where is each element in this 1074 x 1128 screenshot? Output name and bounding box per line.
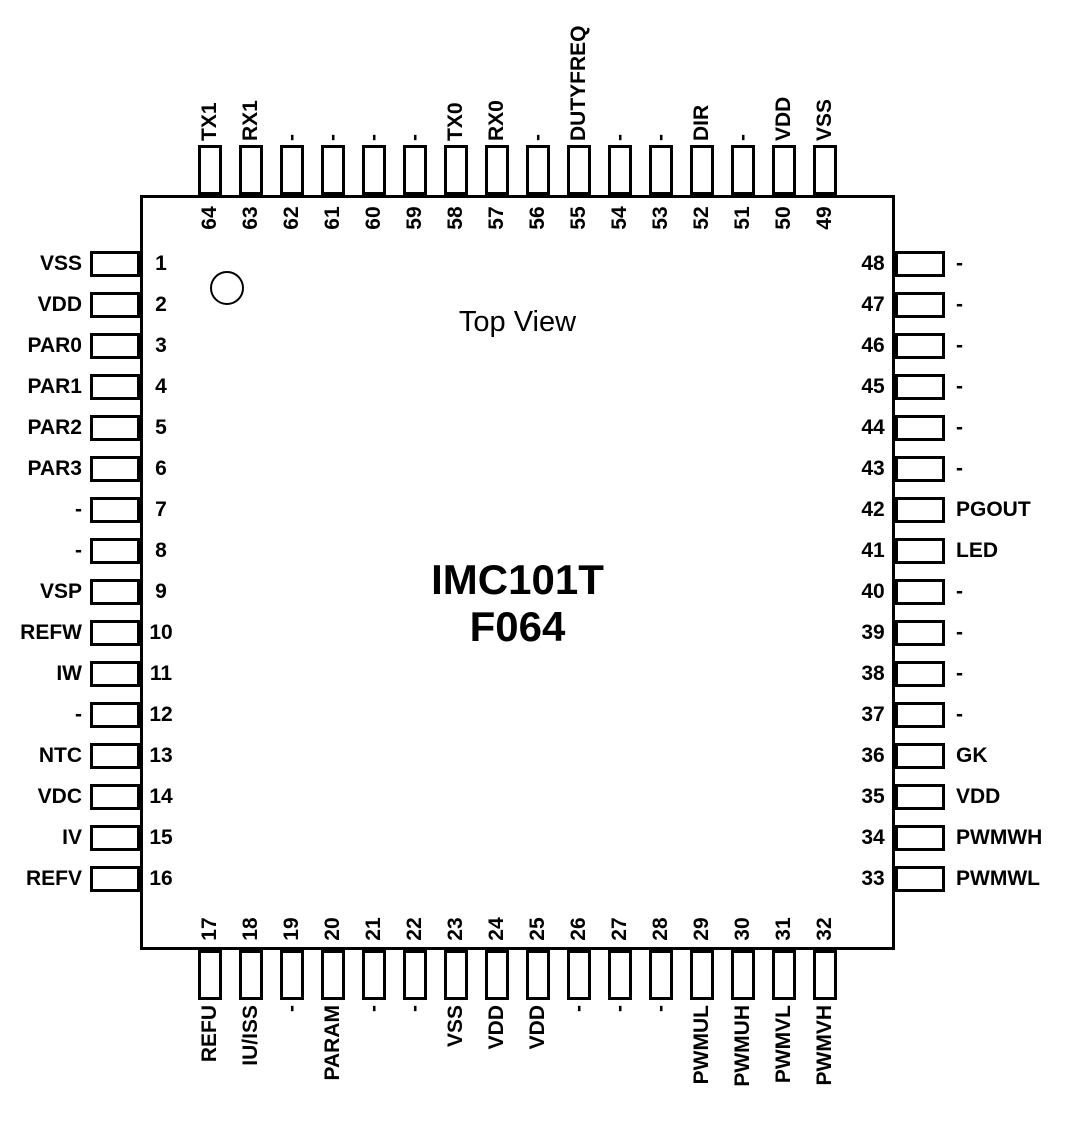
pin-34 (895, 825, 945, 851)
pin-63 (239, 145, 263, 195)
pin-39-label: - (956, 620, 1074, 646)
pin-21-label: - (361, 1005, 387, 1128)
pin-14-label: VDC (0, 784, 82, 810)
chip-package: F064 (140, 603, 895, 650)
pin-21-number: 21 (361, 909, 387, 949)
pin-9-number: 9 (141, 579, 181, 605)
pin-27-number: 27 (607, 909, 633, 949)
pin-19-number: 19 (279, 909, 305, 949)
pin-61-number: 61 (320, 198, 346, 238)
pin-52-label: DIR (689, 1, 715, 141)
pin-22-number: 22 (402, 909, 428, 949)
pin-55-label: DUTYFREQ (566, 1, 592, 141)
pin-19-label: - (279, 1005, 305, 1128)
pin-42 (895, 497, 945, 523)
pin-63-number: 63 (238, 198, 264, 238)
pin-57-number: 57 (484, 198, 510, 238)
pin-62-number: 62 (279, 198, 305, 238)
pin-12-label: - (0, 702, 82, 728)
pin-17-label: REFU (197, 1005, 223, 1128)
pin-37-label: - (956, 702, 1074, 728)
pin-28 (649, 950, 673, 1000)
pin-14-number: 14 (141, 784, 181, 810)
pin-38 (895, 661, 945, 687)
pin-42-number: 42 (853, 497, 893, 523)
pin-29-label: PWMUL (689, 1005, 715, 1128)
pin-32-number: 32 (812, 909, 838, 949)
pin-3-label: PAR0 (0, 333, 82, 359)
pin-40-number: 40 (853, 579, 893, 605)
pin-32-label: PWMVH (812, 1005, 838, 1128)
pin-9-label: VSP (0, 579, 82, 605)
pin-43-label: - (956, 456, 1074, 482)
pin-35 (895, 784, 945, 810)
pin-58-number: 58 (443, 198, 469, 238)
pin-6 (90, 456, 140, 482)
pin-34-label: PWMWH (956, 825, 1074, 851)
pin-1-label: VSS (0, 251, 82, 277)
pin-16 (90, 866, 140, 892)
pin-4-number: 4 (141, 374, 181, 400)
pin-36-label: GK (956, 743, 1074, 769)
view-label: Top View (140, 306, 895, 339)
pin-17 (198, 950, 222, 1000)
pin-48 (895, 251, 945, 277)
pin-47-label: - (956, 292, 1074, 318)
pin-60-number: 60 (361, 198, 387, 238)
pin-44-number: 44 (853, 415, 893, 441)
pin-24-number: 24 (484, 909, 510, 949)
pin-18 (239, 950, 263, 1000)
pin-62-label: - (279, 1, 305, 141)
pin-28-label: - (648, 1005, 674, 1128)
pin-26-number: 26 (566, 909, 592, 949)
pin-10-label: REFW (0, 620, 82, 646)
pin-32 (813, 950, 837, 1000)
pin-39 (895, 620, 945, 646)
pin-25-label: VDD (525, 1005, 551, 1128)
pin-61 (321, 145, 345, 195)
pin-11-number: 11 (141, 661, 181, 687)
pin-46 (895, 333, 945, 359)
pin-61-label: - (320, 1, 346, 141)
pin-63-label: RX1 (238, 1, 264, 141)
pin-52-number: 52 (689, 198, 715, 238)
pin-8 (90, 538, 140, 564)
pin-20-number: 20 (320, 909, 346, 949)
pin-38-number: 38 (853, 661, 893, 687)
pin-15-label: IV (0, 825, 82, 851)
pin-13-number: 13 (141, 743, 181, 769)
pin-16-label: REFV (0, 866, 82, 892)
pin-10 (90, 620, 140, 646)
pin-41-label: LED (956, 538, 1074, 564)
diagram-stage: Top View IMC101T F064 64TX163RX162-61-60… (0, 0, 1074, 1128)
pin-54 (608, 145, 632, 195)
pin-25-number: 25 (525, 909, 551, 949)
pin-48-label: - (956, 251, 1074, 277)
pin-64-label: TX1 (197, 1, 223, 141)
pin-44 (895, 415, 945, 441)
pin-44-label: - (956, 415, 1074, 441)
pin-36 (895, 743, 945, 769)
pin-60 (362, 145, 386, 195)
pin-54-label: - (607, 1, 633, 141)
pin-46-label: - (956, 333, 1074, 359)
pin-1-number: 1 (141, 251, 181, 277)
pin-51-number: 51 (730, 198, 756, 238)
pin-13 (90, 743, 140, 769)
pin-43 (895, 456, 945, 482)
pin-56-number: 56 (525, 198, 551, 238)
pin-33-label: PWMWL (956, 866, 1074, 892)
pin-37-number: 37 (853, 702, 893, 728)
pin-41 (895, 538, 945, 564)
pin-46-number: 46 (853, 333, 893, 359)
pin-7-label: - (0, 497, 82, 523)
pin-24-label: VDD (484, 1005, 510, 1128)
pin-24 (485, 950, 509, 1000)
pin-57-label: RX0 (484, 1, 510, 141)
pin-19 (280, 950, 304, 1000)
pin-35-number: 35 (853, 784, 893, 810)
pin-50-number: 50 (771, 198, 797, 238)
pin-56 (526, 145, 550, 195)
pin-53-number: 53 (648, 198, 674, 238)
pin-64 (198, 145, 222, 195)
pin-3 (90, 333, 140, 359)
pin-5-label: PAR2 (0, 415, 82, 441)
pin-53 (649, 145, 673, 195)
pin-33 (895, 866, 945, 892)
pin-3-number: 3 (141, 333, 181, 359)
pin-17-number: 17 (197, 909, 223, 949)
pin-14 (90, 784, 140, 810)
pin-22-label: - (402, 1005, 428, 1128)
pin-8-number: 8 (141, 538, 181, 564)
pin-6-number: 6 (141, 456, 181, 482)
pin-59-label: - (402, 1, 428, 141)
pin-5-number: 5 (141, 415, 181, 441)
pin-18-number: 18 (238, 909, 264, 949)
pin-1 (90, 251, 140, 277)
pin-30-number: 30 (730, 909, 756, 949)
pin-36-number: 36 (853, 743, 893, 769)
pin-55 (567, 145, 591, 195)
pin-50-label: VDD (771, 1, 797, 141)
pin-7-number: 7 (141, 497, 181, 523)
pin-12 (90, 702, 140, 728)
pin-15-number: 15 (141, 825, 181, 851)
pin-39-number: 39 (853, 620, 893, 646)
pin-45 (895, 374, 945, 400)
pin-47-number: 47 (853, 292, 893, 318)
pin-6-label: PAR3 (0, 456, 82, 482)
pin-59 (403, 145, 427, 195)
pin-49-label: VSS (812, 1, 838, 141)
pin-23 (444, 950, 468, 1000)
pin-38-label: - (956, 661, 1074, 687)
pin-30 (731, 950, 755, 1000)
pin-59-number: 59 (402, 198, 428, 238)
pin-55-number: 55 (566, 198, 592, 238)
pin-62 (280, 145, 304, 195)
pin-23-number: 23 (443, 909, 469, 949)
pin-31-label: PWMVL (771, 1005, 797, 1128)
pin-28-number: 28 (648, 909, 674, 949)
pin-1-marker-icon (210, 271, 244, 305)
pin-12-number: 12 (141, 702, 181, 728)
pin-37 (895, 702, 945, 728)
pin-2 (90, 292, 140, 318)
pin-43-number: 43 (853, 456, 893, 482)
pin-56-label: - (525, 1, 551, 141)
pin-31 (772, 950, 796, 1000)
pin-52 (690, 145, 714, 195)
pin-53-label: - (648, 1, 674, 141)
pin-18-label: IU/ISS (238, 1005, 264, 1128)
pin-47 (895, 292, 945, 318)
pin-22 (403, 950, 427, 1000)
pin-57 (485, 145, 509, 195)
pin-27-label: - (607, 1005, 633, 1128)
pin-54-number: 54 (607, 198, 633, 238)
pin-30-label: PWMUH (730, 1005, 756, 1128)
pin-48-number: 48 (853, 251, 893, 277)
pin-8-label: - (0, 538, 82, 564)
pin-40-label: - (956, 579, 1074, 605)
pin-21 (362, 950, 386, 1000)
pin-20 (321, 950, 345, 1000)
pin-23-label: VSS (443, 1005, 469, 1128)
chip-title: IMC101T (140, 556, 895, 603)
pin-20-label: PARAM (320, 1005, 346, 1128)
pin-13-label: NTC (0, 743, 82, 769)
pin-45-label: - (956, 374, 1074, 400)
pin-41-number: 41 (853, 538, 893, 564)
pin-42-label: PGOUT (956, 497, 1074, 523)
pin-15 (90, 825, 140, 851)
pin-4 (90, 374, 140, 400)
pin-26 (567, 950, 591, 1000)
pin-11 (90, 661, 140, 687)
pin-5 (90, 415, 140, 441)
pin-25 (526, 950, 550, 1000)
pin-45-number: 45 (853, 374, 893, 400)
pin-40 (895, 579, 945, 605)
pin-16-number: 16 (141, 866, 181, 892)
pin-34-number: 34 (853, 825, 893, 851)
pin-49 (813, 145, 837, 195)
pin-58-label: TX0 (443, 1, 469, 141)
chip-name: IMC101T F064 (140, 556, 895, 650)
pin-50 (772, 145, 796, 195)
pin-29 (690, 950, 714, 1000)
pin-4-label: PAR1 (0, 374, 82, 400)
pin-9 (90, 579, 140, 605)
pin-51-label: - (730, 1, 756, 141)
pin-27 (608, 950, 632, 1000)
pin-11-label: IW (0, 661, 82, 687)
pin-2-label: VDD (0, 292, 82, 318)
pin-31-number: 31 (771, 909, 797, 949)
pin-49-number: 49 (812, 198, 838, 238)
pin-26-label: - (566, 1005, 592, 1128)
pin-33-number: 33 (853, 866, 893, 892)
pin-7 (90, 497, 140, 523)
pin-35-label: VDD (956, 784, 1074, 810)
pin-58 (444, 145, 468, 195)
pin-51 (731, 145, 755, 195)
pin-10-number: 10 (141, 620, 181, 646)
pin-60-label: - (361, 1, 387, 141)
pin-29-number: 29 (689, 909, 715, 949)
pin-64-number: 64 (197, 198, 223, 238)
pin-2-number: 2 (141, 292, 181, 318)
